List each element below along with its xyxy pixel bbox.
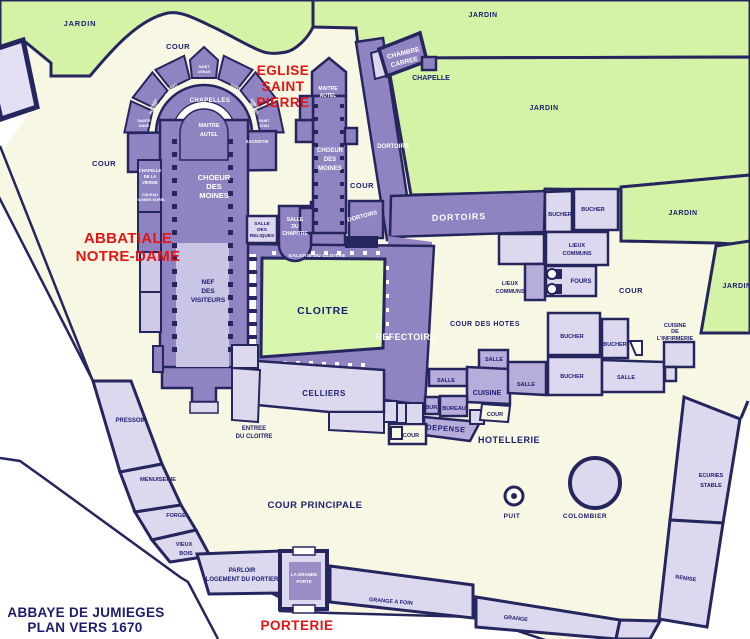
svg-text:COUR: COUR xyxy=(166,42,190,51)
svg-text:DES: DES xyxy=(257,227,268,233)
svg-text:BUCHER: BUCHER xyxy=(560,334,584,340)
svg-text:SALLE: SALLE xyxy=(437,378,455,384)
svg-text:ECURIES: ECURIES xyxy=(699,473,724,479)
svg-text:COLOMBIER: COLOMBIER xyxy=(563,513,607,520)
svg-text:DES: DES xyxy=(206,182,221,191)
svg-text:FORGE: FORGE xyxy=(166,513,186,519)
svg-text:PORTE: PORTE xyxy=(296,579,312,584)
svg-text:PRESSOIR: PRESSOIR xyxy=(115,418,147,424)
svg-text:CHAPELLE: CHAPELLE xyxy=(139,168,162,173)
svg-text:D'AGNES SOREL: D'AGNES SOREL xyxy=(134,198,166,202)
svg-text:JEAN: JEAN xyxy=(259,124,269,128)
svg-text:LIEUX: LIEUX xyxy=(502,281,519,287)
svg-text:SACRISTIE: SACRISTIE xyxy=(246,139,269,144)
svg-text:COMMUNS: COMMUNS xyxy=(562,251,591,257)
svg-text:HOTELLERIE: HOTELLERIE xyxy=(478,435,540,445)
svg-text:JARDIN: JARDIN xyxy=(468,12,497,19)
svg-text:COUR: COUR xyxy=(350,181,374,190)
svg-text:ABBAYE DE JUMIEGES: ABBAYE DE JUMIEGES xyxy=(7,605,164,620)
svg-text:PUIT: PUIT xyxy=(504,513,521,520)
svg-text:MAITRE: MAITRE xyxy=(318,86,338,92)
svg-text:MAITRE: MAITRE xyxy=(198,123,219,129)
svg-text:SALLE: SALLE xyxy=(517,382,535,388)
svg-text:DE LA: DE LA xyxy=(144,174,157,179)
svg-text:SALLE: SALLE xyxy=(287,217,304,223)
svg-text:SALLE: SALLE xyxy=(485,357,503,363)
svg-text:DU: DU xyxy=(291,224,299,230)
svg-text:FOURS: FOURS xyxy=(571,279,592,285)
svg-text:LOGEMENT DU PORTIER: LOGEMENT DU PORTIER xyxy=(206,577,279,583)
svg-text:BUREAU: BUREAU xyxy=(442,406,466,412)
svg-text:CELLIERS: CELLIERS xyxy=(302,389,346,398)
svg-text:EGLISE: EGLISE xyxy=(257,63,310,78)
svg-text:SAINT: SAINT xyxy=(262,79,305,94)
svg-text:REFECTOIRE: REFECTOIRE xyxy=(376,332,437,342)
svg-text:PARLOIR: PARLOIR xyxy=(229,568,256,574)
svg-text:DES: DES xyxy=(201,288,215,295)
svg-text:BUCHER: BUCHER xyxy=(560,374,584,380)
svg-text:MENUISERIE: MENUISERIE xyxy=(140,477,176,483)
svg-text:JARDIN: JARDIN xyxy=(529,105,558,112)
svg-text:COUR: COUR xyxy=(487,412,503,418)
svg-text:AGNAN: AGNAN xyxy=(197,70,211,74)
svg-text:SAINT: SAINT xyxy=(259,119,271,123)
svg-text:SALLE: SALLE xyxy=(254,221,271,227)
svg-text:COMMUNS: COMMUNS xyxy=(495,289,524,295)
svg-text:VIERGE: VIERGE xyxy=(142,180,158,185)
svg-text:PIERRE: PIERRE xyxy=(256,95,309,110)
svg-text:BUCHER: BUCHER xyxy=(548,212,572,218)
svg-text:CAVEAU: CAVEAU xyxy=(142,193,158,197)
svg-text:DE: DE xyxy=(671,329,679,335)
svg-text:ANNE: ANNE xyxy=(139,124,150,128)
svg-text:PORTERIE: PORTERIE xyxy=(260,618,333,633)
svg-text:SAINT: SAINT xyxy=(199,65,211,69)
svg-text:LIEUX: LIEUX xyxy=(569,243,586,249)
svg-text:PLAN VERS 1670: PLAN VERS 1670 xyxy=(27,620,142,635)
svg-text:DU CLOITRE: DU CLOITRE xyxy=(236,434,273,440)
svg-text:NOTRE-DAME: NOTRE-DAME xyxy=(76,248,181,265)
svg-text:CUISINE: CUISINE xyxy=(473,390,502,397)
svg-text:AUTEL: AUTEL xyxy=(200,132,219,138)
svg-text:SAINTE: SAINTE xyxy=(137,119,151,123)
svg-text:BOIS: BOIS xyxy=(179,551,193,557)
svg-text:RELIQUES: RELIQUES xyxy=(250,233,275,239)
svg-text:AUTEL: AUTEL xyxy=(320,93,337,99)
svg-text:DORTOIRS: DORTOIRS xyxy=(432,211,487,223)
svg-text:CHOEUR: CHOEUR xyxy=(198,173,231,182)
svg-text:JARDIN: JARDIN xyxy=(668,210,697,217)
svg-text:CHOEUR: CHOEUR xyxy=(317,148,344,154)
svg-text:ENTREE: ENTREE xyxy=(242,426,266,432)
svg-text:CHAPITRE: CHAPITRE xyxy=(282,231,308,237)
svg-text:VISITEURS: VISITEURS xyxy=(191,297,226,304)
svg-text:COUR: COUR xyxy=(403,433,419,439)
svg-text:COUR PRINCIPALE: COUR PRINCIPALE xyxy=(268,500,363,511)
svg-text:ABBATIALE: ABBATIALE xyxy=(84,230,172,247)
svg-text:CHAPELLES: CHAPELLES xyxy=(190,98,231,104)
svg-text:CHAPELLE: CHAPELLE xyxy=(412,75,450,82)
svg-text:MOINES: MOINES xyxy=(199,191,229,200)
svg-text:BUR.: BUR. xyxy=(425,405,439,411)
svg-text:STABLE: STABLE xyxy=(700,483,722,489)
svg-text:JARDIN: JARDIN xyxy=(64,19,97,28)
svg-text:LA GRANDE: LA GRANDE xyxy=(291,572,318,577)
svg-text:SALLE: SALLE xyxy=(617,375,635,381)
svg-text:BUCHER: BUCHER xyxy=(603,342,627,348)
svg-text:JARDIN: JARDIN xyxy=(722,283,750,290)
svg-text:GALERIE DU CLOITRE: GALERIE DU CLOITRE xyxy=(288,253,346,259)
svg-text:NEF: NEF xyxy=(202,279,215,286)
svg-text:COUR DES HOTES: COUR DES HOTES xyxy=(450,321,520,328)
svg-text:DES: DES xyxy=(324,157,336,163)
svg-text:DORTOIRS: DORTOIRS xyxy=(377,144,409,150)
svg-text:COUR: COUR xyxy=(619,286,643,295)
svg-text:CLOITRE: CLOITRE xyxy=(297,305,349,317)
svg-text:MOINES: MOINES xyxy=(318,166,342,172)
svg-text:BUCHER: BUCHER xyxy=(581,207,605,213)
svg-text:L'INFIRMERIE: L'INFIRMERIE xyxy=(657,336,694,342)
svg-text:COUR: COUR xyxy=(92,159,116,168)
svg-text:VIEUX: VIEUX xyxy=(176,542,193,548)
